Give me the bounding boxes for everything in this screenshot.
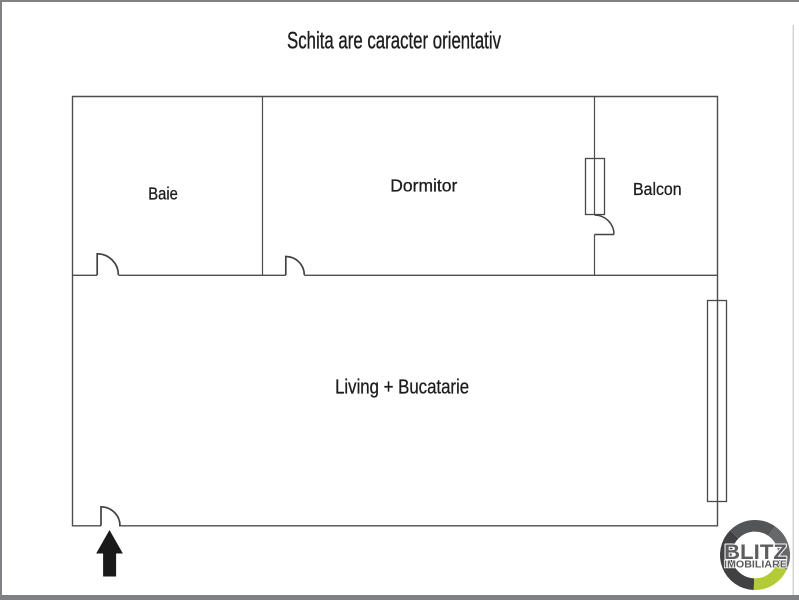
svg-text:Baie: Baie [148,183,178,203]
svg-text:Dormitor: Dormitor [390,176,457,196]
svg-text:IMOBILIARE: IMOBILIARE [724,559,787,571]
svg-text:Balcon: Balcon [633,179,682,199]
svg-text:Living + Bucatarie: Living + Bucatarie [335,376,469,398]
svg-text:Schita are caracter orientativ: Schita are caracter orientativ [287,28,501,55]
